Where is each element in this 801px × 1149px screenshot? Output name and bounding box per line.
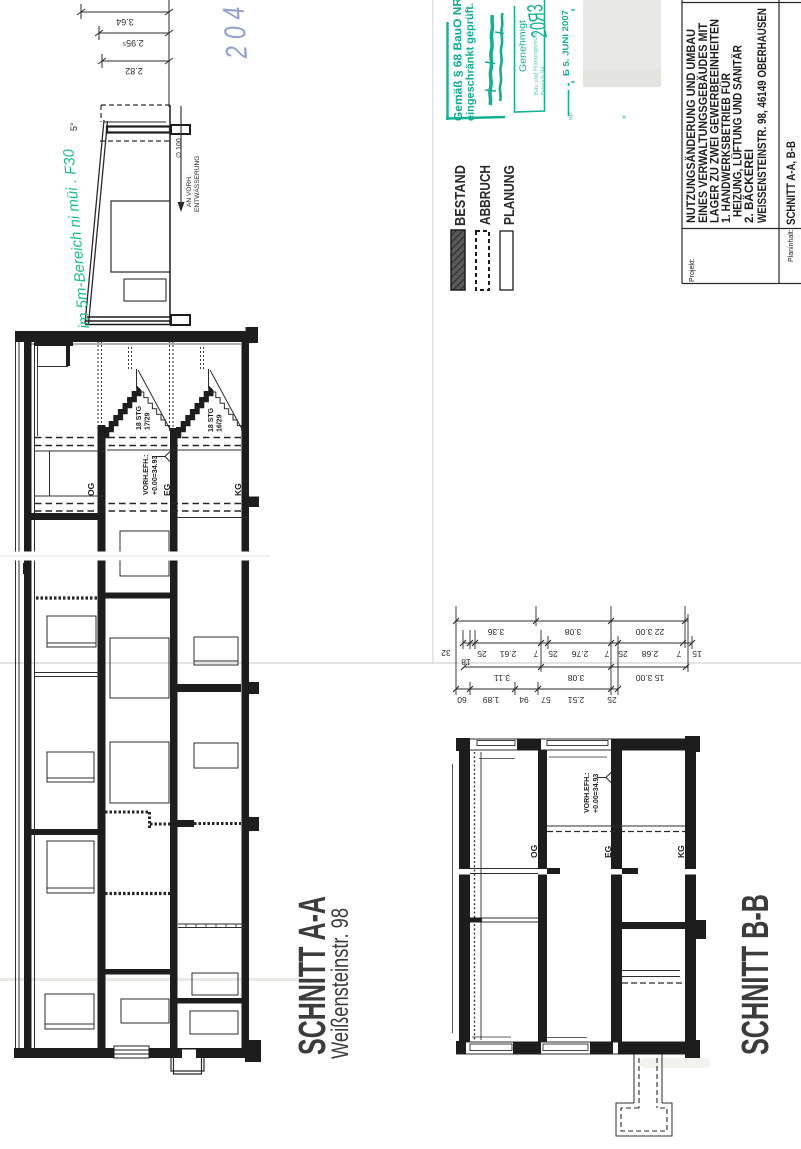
svg-text:2 0 4: 2 0 4 [217, 6, 254, 61]
svg-text:SCHNITT A-A, B-B: SCHNITT A-A, B-B [784, 141, 798, 225]
svg-text:EG: EG [603, 845, 613, 858]
svg-text:17/29: 17/29 [145, 412, 152, 430]
svg-text:25: 25 [477, 649, 487, 659]
svg-text:EINES VERWALTUNGSGEBÄUDES MIT: EINES VERWALTUNGSGEBÄUDES MIT [697, 23, 710, 223]
svg-text:ABBRUCH: ABBRUCH [477, 165, 494, 225]
svg-text:KG: KG [676, 845, 686, 858]
svg-text:Planinhalt:: Planinhalt: [788, 229, 795, 262]
svg-text:94: 94 [519, 695, 529, 705]
svg-text:25: 25 [618, 649, 628, 659]
svg-text:OG: OG [86, 482, 96, 496]
svg-text:NUTZUNGSÄNDERUNG UND UMBAU: NUTZUNGSÄNDERUNG UND UMBAU [685, 29, 698, 223]
svg-text:BESTAND: BESTAND [452, 165, 469, 226]
svg-text:2.68: 2.68 [641, 649, 658, 659]
svg-text:∅ 100: ∅ 100 [176, 138, 183, 158]
svg-text:KG: KG [233, 483, 243, 496]
svg-text:OG: OG [529, 844, 539, 858]
svg-text:7: 7 [604, 649, 609, 659]
svg-text:3.08: 3.08 [564, 627, 581, 637]
svg-text:Projekt:: Projekt: [689, 258, 696, 282]
svg-text:15: 15 [692, 649, 702, 659]
svg-text:18 STG: 18 STG [136, 405, 143, 430]
svg-text:HEIZUNG, LÜFTUNG UND SANITÄR: HEIZUNG, LÜFTUNG UND SANITÄR [732, 44, 745, 217]
svg-text:15 3.00: 15 3.00 [636, 673, 665, 683]
svg-text:1. HANDWERKSBETRIEB FÜR: 1. HANDWERKSBETRIEB FÜR [720, 72, 733, 223]
svg-text:WEISSENSTEINSTR. 98, 46149 OBE: WEISSENSTEINSTR. 98, 46149 OBERHAUSEN [757, 8, 769, 223]
svg-text:Б 5. JUNI 2007: Б 5. JUNI 2007 [560, 10, 571, 76]
svg-text:3.36: 3.36 [487, 627, 504, 637]
svg-text:5°: 5° [69, 122, 79, 131]
svg-text:Weißensteinstr. 98: Weißensteinstr. 98 [327, 908, 354, 1059]
svg-text:LAGER ZU ZWEI GEWERBEEINHEITEN: LAGER ZU ZWEI GEWERBEEINHEITEN [710, 19, 722, 223]
svg-text:2.82: 2.82 [125, 66, 143, 76]
svg-text:2.76: 2.76 [571, 649, 588, 659]
svg-text:25: 25 [607, 695, 617, 705]
svg-text:3.11: 3.11 [494, 673, 510, 683]
svg-text:16/29: 16/29 [217, 414, 224, 432]
svg-text:57: 57 [541, 695, 551, 705]
svg-text:EG: EG [162, 483, 172, 496]
svg-text:SCHNITT B-B: SCHNITT B-B [735, 894, 777, 1055]
svg-text:3.64: 3.64 [116, 17, 134, 27]
svg-text:60: 60 [457, 695, 467, 705]
svg-text:1.89: 1.89 [482, 695, 499, 705]
svg-text:Bau und Planungsrecht: Bau und Planungsrecht [533, 32, 540, 95]
svg-text:3.08: 3.08 [567, 673, 584, 683]
svg-text:Bereich 94: Bereich 94 [540, 66, 547, 95]
svg-text:2.61: 2.61 [499, 649, 516, 659]
svg-text:AN VORH.: AN VORH. [186, 175, 193, 207]
svg-text:ENTWÄSSERUNG: ENTWÄSSERUNG [193, 156, 201, 212]
svg-text:PLANUNG: PLANUNG [501, 165, 518, 225]
svg-text:+0.00=34.93: +0.00=34.93 [593, 774, 600, 813]
svg-text:25: 25 [548, 649, 558, 659]
svg-text:7: 7 [676, 649, 681, 659]
svg-text:VORH.EFH.:: VORH.EFH.: [584, 773, 591, 813]
svg-text:+0.00=34.93: +0.00=34.93 [152, 456, 159, 495]
svg-text:22 3.00: 22 3.00 [636, 627, 665, 637]
svg-text:op: op [568, 113, 574, 120]
svg-text:32: 32 [441, 648, 451, 658]
svg-text:18: 18 [461, 657, 471, 667]
svg-text:2.51: 2.51 [567, 695, 584, 705]
svg-text:VORH.EFH.:: VORH.EFH.: [143, 455, 150, 495]
svg-text:Gemäß § 68 BauO NR: Gemäß § 68 BauO NR [452, 0, 465, 121]
svg-text:2.95⁵: 2.95⁵ [122, 38, 144, 48]
svg-text:7: 7 [533, 649, 538, 659]
svg-text:18 STG: 18 STG [208, 407, 215, 432]
svg-text:2. BÄCKEREI: 2. BÄCKEREI [743, 149, 756, 223]
svg-text:eingeschränkt geprüft.: eingeschränkt geprüft. [464, 3, 477, 121]
